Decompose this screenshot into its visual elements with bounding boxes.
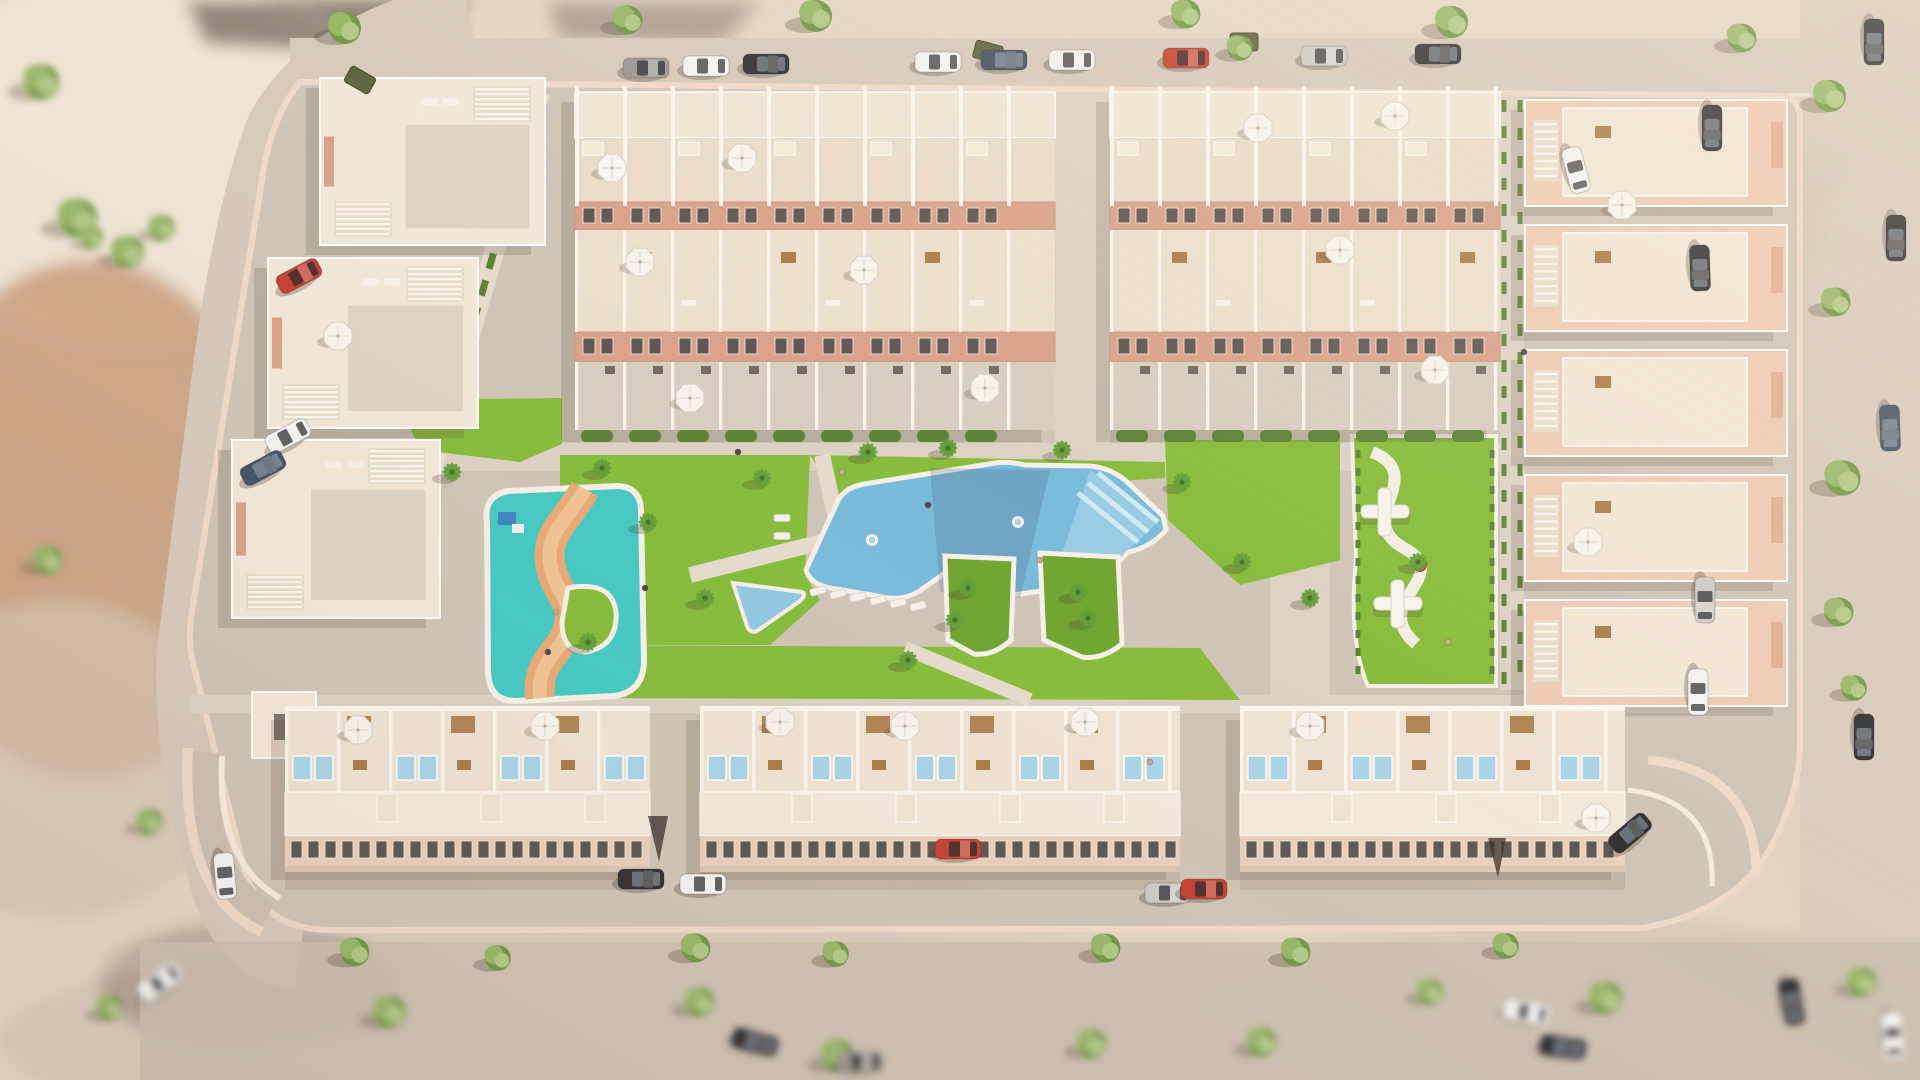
aerial-render-residential-complex: [0, 0, 1920, 1080]
light-overlay: [0, 0, 1920, 1080]
scene-svg: [0, 0, 1920, 1080]
